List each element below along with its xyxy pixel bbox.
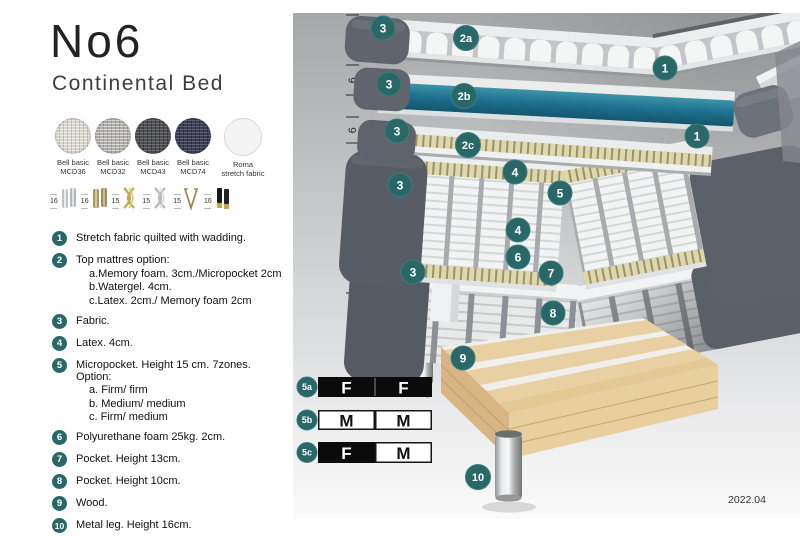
legend-sub-option: a. Firm/ firm	[89, 384, 287, 396]
legend-badge-10: 10	[52, 518, 67, 533]
legend-text: Top mattres option:a.Memory foam. 3cm./M…	[76, 253, 282, 307]
badge-3: 3	[388, 173, 412, 197]
legend-list: 1Stretch fabric quilted with wadding.2To…	[52, 231, 287, 540]
fabric-swatch-label: Bell basicMCD36	[57, 158, 89, 176]
leg-height: 15	[112, 194, 120, 209]
bed-exploded-diagram: 106623 cm27 cm16 cm	[293, 13, 800, 519]
badge-label: 2b	[458, 91, 471, 103]
version-text: 2022.04	[728, 494, 766, 506]
fabric-swatches: Bell basicMCD36Bell basicMCD32Bell basic…	[53, 118, 266, 178]
firmness-letter: M	[396, 411, 410, 430]
legend-main-text: Micropocket. Height 15 cm. 7zones. Optio…	[76, 359, 287, 383]
fabric-name-line1: Bell basic	[97, 158, 129, 167]
leg-option-cross-gold: 15	[112, 186, 140, 216]
badge-label: 9	[460, 351, 467, 365]
legend-item-3: 3Fabric.	[52, 314, 287, 329]
badge-1: 1	[653, 56, 677, 80]
fabric-name-line2: MCD43	[137, 167, 169, 176]
fabric-swatch-label: Romastretch fabric	[222, 160, 265, 178]
product-sheet: No6 Continental Bed Bell basicMCD36Bell …	[0, 0, 800, 533]
product-subtitle: Continental Bed	[52, 72, 224, 96]
legend-main-text: Metal leg. Height 16cm.	[76, 519, 192, 531]
badge-4: 4	[503, 160, 527, 184]
leg-height-value: 15	[112, 195, 120, 208]
fabric-swatch-label: Bell basicMCD32	[97, 158, 129, 176]
legend-item-5: 5Micropocket. Height 15 cm. 7zones. Opti…	[52, 358, 287, 424]
fabric-swatch-circle	[175, 118, 211, 154]
badge-label: 10	[472, 472, 484, 484]
legend-main-text: Fabric.	[76, 315, 110, 327]
fabric-name-line1: Bell basic	[177, 158, 209, 167]
legend-sub-option: a.Memory foam. 3cm./Micropocket 2cm	[89, 268, 282, 280]
legend-sub-option: c. Firm/ medium	[89, 411, 287, 423]
tick-dash	[50, 208, 57, 209]
legend-badge-5: 5	[52, 358, 67, 373]
legend-text: Latex. 4cm.	[76, 336, 133, 351]
badge-1: 1	[685, 124, 709, 148]
badge-7: 7	[539, 261, 563, 285]
fabric-swatch-mcd36: Bell basicMCD36	[53, 118, 93, 176]
right-back-rim	[775, 41, 800, 163]
fabric-name-line1: Bell basic	[137, 158, 169, 167]
leg-height-value: 16	[204, 195, 212, 208]
legend-badge-7: 7	[52, 452, 67, 467]
legend-text: Polyurethane foam 25kg. 2cm.	[76, 430, 225, 445]
leg-height-value: 15	[173, 195, 181, 208]
legend-text: Stretch fabric quilted with wadding.	[76, 231, 246, 246]
firmness-letter: F	[398, 378, 408, 397]
firmness-letter: F	[341, 444, 351, 463]
fabric-swatch-stretch-fabric: Romastretch fabric	[220, 118, 266, 178]
badge-3: 3	[385, 119, 409, 143]
firmness-row-5a: 5aFF	[297, 377, 432, 397]
layer-2a-left-arm	[371, 18, 657, 78]
fabric-swatch-mcd43: Bell basicMCD43	[133, 118, 173, 176]
firmness-letter: F	[341, 378, 351, 397]
badge-label: 3	[386, 77, 393, 91]
badge-label: 4	[512, 165, 519, 179]
legend-text: Fabric.	[76, 314, 110, 329]
badge-3: 3	[401, 260, 425, 284]
firmness-row-5b: 5bMM	[297, 410, 431, 430]
badge-3: 3	[371, 16, 395, 40]
badge-label: 1	[662, 61, 669, 75]
legend-item-10: 10Metal leg. Height 16cm.	[52, 518, 287, 533]
badge-label: 7	[548, 266, 555, 280]
firmness-badge-label: 5a	[302, 382, 313, 392]
legend-main-text: Latex. 4cm.	[76, 337, 133, 349]
badge-2a: 2a	[454, 26, 479, 51]
legend-badge-4: 4	[52, 336, 67, 351]
tick-dash	[174, 208, 181, 209]
tick-dash	[81, 208, 88, 209]
badge-label: 3	[410, 265, 417, 279]
tick-dash	[112, 208, 119, 209]
fabric-swatch-label: Bell basicMCD43	[137, 158, 169, 176]
fabric-name-line2: stretch fabric	[222, 169, 265, 178]
badge-5: 5	[548, 181, 572, 205]
fabric-name-line2: MCD74	[177, 167, 209, 176]
legend-main-text: Top mattres option:	[76, 254, 282, 266]
fabric-swatch-circle	[95, 118, 131, 154]
leg-options: 161615151516	[50, 186, 235, 216]
legend-text: Micropocket. Height 15 cm. 7zones. Optio…	[76, 358, 287, 424]
legend-text: Pocket. Height 10cm.	[76, 474, 181, 489]
leg-height: 16	[81, 194, 89, 209]
legend-main-text: Pocket. Height 13cm.	[76, 453, 181, 465]
hairpin-leg-icon	[182, 186, 201, 216]
badge-2c: 2c	[456, 133, 481, 158]
legend-item-4: 4Latex. 4cm.	[52, 336, 287, 351]
front-leg-shadow	[482, 502, 536, 513]
legend-item-9: 9Wood.	[52, 496, 287, 511]
legend-text: Wood.	[76, 496, 108, 511]
legend-item-7: 7Pocket. Height 13cm.	[52, 452, 287, 467]
firmness-badge-label: 5c	[302, 448, 312, 458]
fabric-swatch-circle	[135, 118, 171, 154]
badge-label: 4	[515, 223, 522, 237]
badge-label: 5	[557, 186, 564, 200]
fabric-swatch-mcd74: Bell basicMCD74	[173, 118, 213, 176]
fabric-name-line1: Roma	[222, 160, 265, 169]
cross-silver-leg-icon	[151, 186, 170, 216]
firmness-row-5c: 5cFM	[297, 442, 431, 463]
fabric-swatch-label: Bell basicMCD74	[177, 158, 209, 176]
badge-label: 2c	[462, 140, 474, 152]
layer-2b	[377, 73, 735, 132]
leg-height-value: 16	[81, 195, 89, 208]
cylinder-silver-leg-icon	[59, 186, 78, 216]
badge-label: 3	[394, 124, 401, 138]
legend-badge-2: 2	[52, 253, 67, 268]
badge-label: 3	[397, 178, 404, 192]
version-label: 2022.04	[728, 494, 766, 506]
legend-sub-option: b. Medium/ medium	[89, 398, 287, 410]
badge-8: 8	[541, 301, 565, 325]
badge-3: 3	[377, 72, 401, 96]
badge-4: 4	[506, 218, 530, 242]
product-title: No6	[50, 14, 143, 68]
legend-main-text: Stretch fabric quilted with wadding.	[76, 232, 246, 244]
fabric-swatch-mcd32: Bell basicMCD32	[93, 118, 133, 176]
legend-item-1: 1Stretch fabric quilted with wadding.	[52, 231, 287, 246]
legend-badge-6: 6	[52, 430, 67, 445]
legend-badge-1: 1	[52, 231, 67, 246]
legend-main-text: Pocket. Height 10cm.	[76, 475, 181, 487]
legend-badge-8: 8	[52, 474, 67, 489]
legend-item-8: 8Pocket. Height 10cm.	[52, 474, 287, 489]
badge-label: 1	[694, 129, 701, 143]
legend-text: Pocket. Height 13cm.	[76, 452, 181, 467]
legend-badge-3: 3	[52, 314, 67, 329]
badge-9: 9	[451, 346, 475, 370]
badge-2b: 2b	[452, 84, 477, 109]
legend-text: Metal leg. Height 16cm.	[76, 518, 192, 533]
legend-item-2: 2Top mattres option:a.Memory foam. 3cm./…	[52, 253, 287, 307]
fabric-swatch-circle	[55, 118, 91, 154]
firmness-table: 5aFF5bMM5cFM	[297, 377, 432, 463]
legend-item-6: 6Polyurethane foam 25kg. 2cm.	[52, 430, 287, 445]
ruler-label: 6	[347, 127, 359, 134]
left-panel: No6 Continental Bed Bell basicMCD36Bell …	[0, 0, 293, 533]
badge-10: 10	[466, 465, 491, 490]
badge-label: 8	[550, 306, 557, 320]
leg-height: 15	[173, 194, 181, 209]
tick-dash	[143, 208, 150, 209]
diagram-panel: 106623 cm27 cm16 cm	[293, 13, 800, 519]
fabric-name-line2: MCD36	[57, 167, 89, 176]
legend-main-text: Wood.	[76, 497, 108, 509]
leg-height-value: 16	[50, 195, 58, 208]
cylinder-brass-leg-icon	[90, 186, 109, 216]
legend-sub-option: c.Latex. 2cm./ Memory foam 2cm	[89, 295, 282, 307]
black-gold-leg-icon	[213, 186, 232, 216]
leg-option-cylinder-silver: 16	[50, 186, 78, 216]
cross-gold-leg-icon	[120, 186, 139, 216]
leg-height: 16	[204, 194, 212, 209]
leg-option-cylinder-brass: 16	[81, 186, 109, 216]
badge-label: 2a	[460, 33, 473, 45]
badge-label: 6	[515, 250, 522, 264]
legend-sub-option: b.Watergel. 4cm.	[89, 281, 282, 293]
leg-height-value: 15	[142, 195, 150, 208]
legend-main-text: Polyurethane foam 25kg. 2cm.	[76, 431, 225, 443]
fabric-name-line1: Bell basic	[57, 158, 89, 167]
leg-option-hairpin: 15	[173, 186, 201, 216]
metal-leg-front	[495, 430, 522, 501]
firmness-letter: M	[396, 444, 410, 463]
firmness-badge-label: 5b	[302, 415, 313, 425]
legend-badge-9: 9	[52, 496, 67, 511]
leg-height: 15	[142, 194, 150, 209]
firmness-letter: M	[339, 411, 353, 430]
badge-6: 6	[506, 245, 530, 269]
fabric-name-line2: MCD32	[97, 167, 129, 176]
badge-label: 3	[380, 21, 387, 35]
leg-height: 16	[50, 194, 58, 209]
leg-option-cross-silver: 15	[142, 186, 170, 216]
tick-dash	[204, 208, 211, 209]
leg-option-black-gold: 16	[204, 186, 232, 216]
fabric-swatch-circle	[224, 118, 262, 156]
